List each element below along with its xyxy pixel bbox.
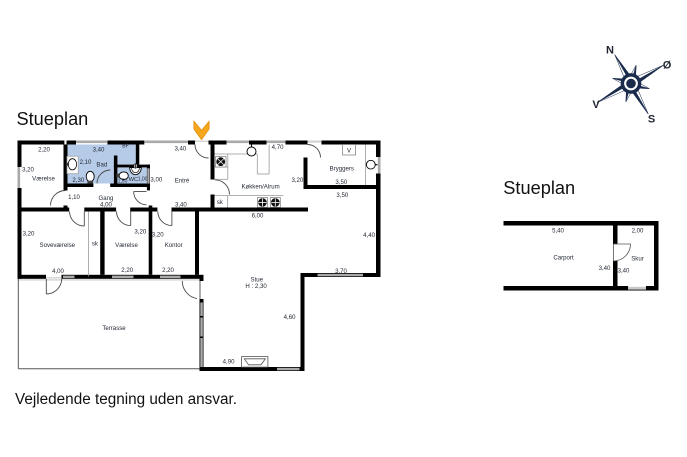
svg-text:3,40: 3,40 [175, 202, 187, 209]
svg-text:2,20: 2,20 [121, 267, 133, 274]
svg-text:3,20: 3,20 [23, 231, 35, 238]
svg-text:3,20: 3,20 [134, 229, 146, 236]
svg-text:5,40: 5,40 [552, 228, 564, 235]
svg-text:4,60: 4,60 [284, 314, 296, 321]
svg-text:3,20: 3,20 [291, 177, 303, 184]
svg-text:3,00: 3,00 [150, 177, 162, 184]
svg-text:1,50: 1,50 [118, 179, 128, 185]
svg-text:3,40: 3,40 [174, 145, 186, 152]
svg-text:Soveværelse: Soveværelse [40, 242, 76, 249]
svg-text:Carport: Carport [553, 255, 574, 262]
svg-text:sk: sk [217, 199, 224, 206]
svg-text:3,40: 3,40 [599, 265, 611, 272]
svg-text:V: V [347, 148, 352, 155]
svg-text:Køkken/Alrum: Køkken/Alrum [241, 183, 279, 190]
svg-text:1,00: 1,00 [138, 177, 148, 183]
svg-text:6,00: 6,00 [252, 213, 264, 220]
svg-text:4,40: 4,40 [363, 232, 375, 239]
svg-text:2,20: 2,20 [162, 267, 174, 274]
svg-text:3,40: 3,40 [93, 147, 105, 154]
svg-text:H : 2,30: H : 2,30 [245, 283, 267, 290]
svg-text:3,40: 3,40 [618, 268, 630, 275]
svg-text:4,70: 4,70 [272, 144, 284, 151]
svg-text:Værelse: Værelse [32, 175, 55, 182]
svg-text:1,10: 1,10 [68, 194, 80, 201]
svg-text:3,50: 3,50 [335, 179, 347, 186]
svg-text:Værelse: Værelse [115, 242, 138, 249]
svg-text:Skur: Skur [631, 256, 644, 263]
svg-text:2,20: 2,20 [38, 147, 50, 154]
svg-text:3,20: 3,20 [22, 167, 34, 174]
svg-text:3,50: 3,50 [336, 192, 348, 199]
svg-text:Terrasse: Terrasse [102, 325, 126, 332]
svg-text:2,30: 2,30 [72, 177, 84, 184]
svg-text:sk: sk [92, 240, 99, 247]
svg-text:Bad: Bad [96, 161, 107, 168]
svg-text:4,00: 4,00 [52, 268, 64, 275]
svg-text:Kontor: Kontor [165, 242, 183, 249]
svg-text:3,70: 3,70 [335, 268, 347, 275]
svg-text:Bryggers: Bryggers [330, 166, 354, 173]
svg-text:BF: BF [122, 144, 128, 150]
svg-text:2,00: 2,00 [632, 228, 644, 235]
svg-text:4,90: 4,90 [223, 359, 235, 366]
svg-text:3,20: 3,20 [152, 232, 164, 239]
svg-text:2,10: 2,10 [80, 159, 92, 166]
svg-text:4,00: 4,00 [100, 202, 112, 209]
svg-text:Entré: Entré [175, 178, 190, 185]
